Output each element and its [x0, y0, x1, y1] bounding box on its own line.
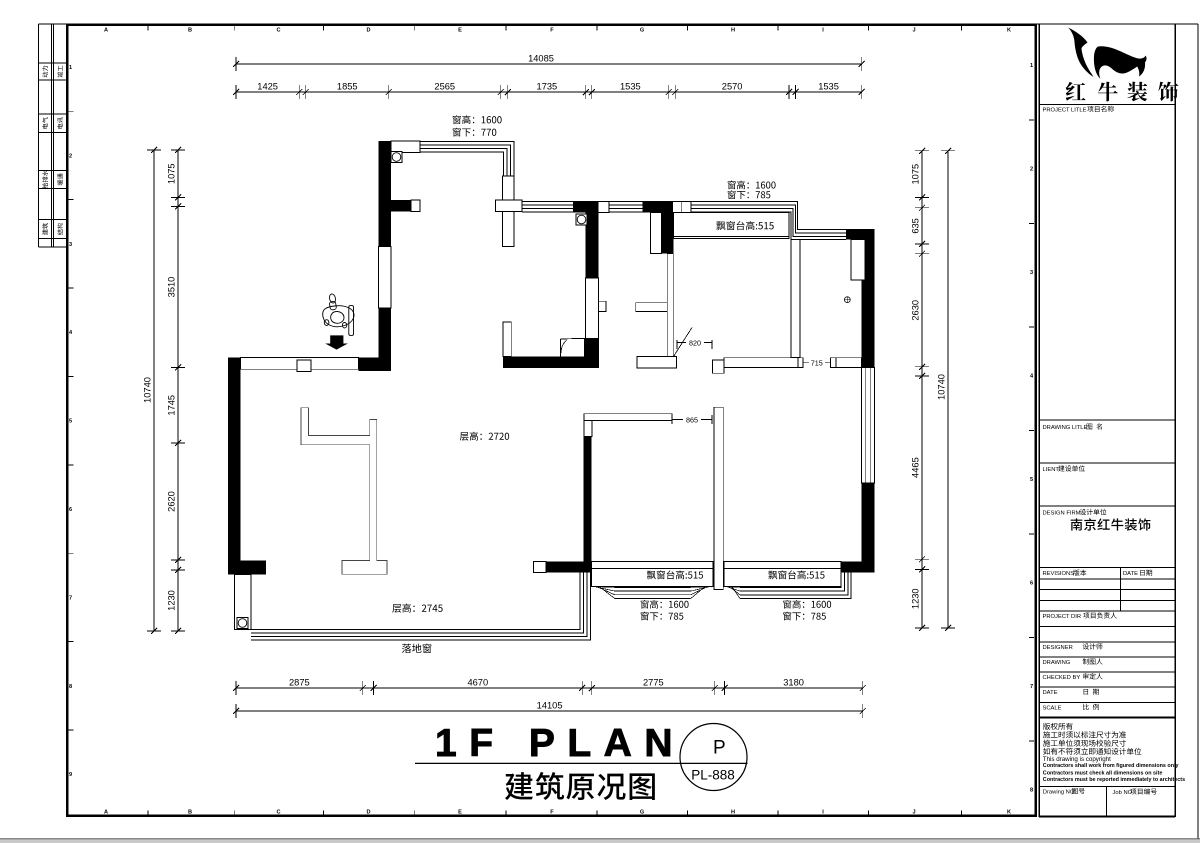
- svg-text:1075: 1075: [911, 164, 921, 185]
- svg-text:5: 5: [69, 419, 72, 425]
- svg-text:715: 715: [811, 358, 823, 367]
- svg-text:B: B: [188, 810, 192, 816]
- svg-text:DATE: DATE: [1043, 690, 1058, 696]
- svg-text:DESIGNER: DESIGNER: [1043, 645, 1073, 651]
- svg-text:A: A: [104, 28, 108, 34]
- svg-text:14105: 14105: [537, 701, 563, 711]
- svg-text:1075: 1075: [167, 163, 177, 184]
- svg-text:6: 6: [1030, 581, 1033, 587]
- svg-text:1745: 1745: [167, 395, 177, 416]
- svg-text:7: 7: [69, 595, 72, 601]
- svg-text:DATE: DATE: [1123, 571, 1138, 577]
- svg-text:H: H: [731, 810, 735, 816]
- svg-text:Job NO: Job NO: [1113, 790, 1133, 796]
- svg-text:1230: 1230: [167, 590, 177, 611]
- svg-text:10740: 10740: [937, 374, 947, 400]
- svg-text:Contractors must check all dim: Contractors must check all dimensions on…: [1043, 771, 1163, 777]
- svg-text:D: D: [366, 28, 370, 34]
- svg-text:DRAWING LITLE: DRAWING LITLE: [1043, 425, 1088, 431]
- svg-text:9: 9: [69, 772, 72, 778]
- svg-text:3: 3: [1030, 270, 1033, 276]
- svg-text:2620: 2620: [167, 491, 177, 512]
- svg-text:1425: 1425: [257, 82, 278, 92]
- svg-text:8: 8: [1030, 788, 1033, 794]
- svg-text:2: 2: [1030, 167, 1033, 173]
- svg-text:Contractors shall work from fi: Contractors shall work from figured dime…: [1043, 763, 1179, 769]
- svg-text:7: 7: [1030, 684, 1033, 690]
- svg-text:G: G: [640, 810, 644, 816]
- svg-text:P: P: [713, 738, 726, 759]
- svg-text:H: H: [731, 28, 735, 34]
- svg-text:10740: 10740: [143, 377, 153, 403]
- svg-text:865: 865: [686, 415, 698, 424]
- svg-text:Drawing NO: Drawing NO: [1043, 790, 1075, 796]
- svg-text:1: 1: [69, 65, 72, 71]
- svg-text:F: F: [550, 810, 554, 816]
- svg-text:4670: 4670: [467, 678, 488, 688]
- svg-text:2875: 2875: [289, 678, 310, 688]
- svg-text:E: E: [458, 28, 462, 34]
- svg-text:PROJECT DIR: PROJECT DIR: [1043, 614, 1082, 620]
- svg-text:DRAWING: DRAWING: [1043, 660, 1071, 666]
- svg-text:635: 635: [911, 218, 921, 234]
- svg-text:PROJECT LITLE: PROJECT LITLE: [1043, 108, 1087, 114]
- svg-text:J: J: [912, 810, 915, 816]
- svg-text:2565: 2565: [434, 82, 455, 92]
- svg-text:PL-888: PL-888: [691, 768, 735, 783]
- svg-text:F: F: [550, 28, 554, 34]
- svg-text:3: 3: [69, 242, 72, 248]
- svg-text:1535: 1535: [818, 82, 839, 92]
- svg-text:3510: 3510: [167, 277, 177, 298]
- svg-text:3180: 3180: [783, 678, 804, 688]
- svg-text:2: 2: [69, 153, 72, 159]
- svg-text:C: C: [276, 28, 280, 34]
- svg-text:2775: 2775: [643, 678, 664, 688]
- svg-text:E: E: [458, 810, 462, 816]
- svg-text:D: D: [366, 810, 370, 816]
- svg-text:1230: 1230: [911, 588, 921, 609]
- svg-text:K: K: [1007, 810, 1011, 816]
- svg-text:6: 6: [69, 507, 72, 513]
- svg-text:C: C: [276, 810, 280, 816]
- svg-text:G: G: [640, 28, 644, 34]
- svg-text:1735: 1735: [537, 82, 558, 92]
- svg-text:820: 820: [689, 338, 701, 347]
- svg-text:DESIGN FIRM: DESIGN FIRM: [1043, 511, 1081, 517]
- svg-text:2570: 2570: [722, 82, 743, 92]
- svg-text:REVISIONS: REVISIONS: [1043, 571, 1075, 577]
- svg-text:1535: 1535: [620, 82, 641, 92]
- svg-text:1: 1: [1030, 63, 1033, 69]
- svg-text:B: B: [188, 28, 192, 34]
- svg-text:1F PLAN: 1F PLAN: [435, 722, 685, 765]
- svg-text:J: J: [912, 28, 915, 34]
- svg-text:8: 8: [69, 684, 72, 690]
- svg-text:4465: 4465: [911, 457, 921, 478]
- svg-text:CHECKED BY: CHECKED BY: [1043, 675, 1081, 681]
- svg-text:SCALE: SCALE: [1043, 705, 1062, 711]
- svg-text:Contractors must be reported i: Contractors must be reported immediately…: [1043, 777, 1185, 783]
- svg-text:A: A: [104, 810, 108, 816]
- svg-text:LIENT: LIENT: [1043, 467, 1060, 473]
- svg-text:2630: 2630: [911, 300, 921, 321]
- svg-text:This drawing is copyright: This drawing is copyright: [1043, 756, 1111, 763]
- svg-text:5: 5: [1030, 477, 1033, 483]
- svg-text:K: K: [1007, 28, 1011, 34]
- svg-text:14085: 14085: [528, 54, 554, 64]
- svg-text:1855: 1855: [337, 82, 358, 92]
